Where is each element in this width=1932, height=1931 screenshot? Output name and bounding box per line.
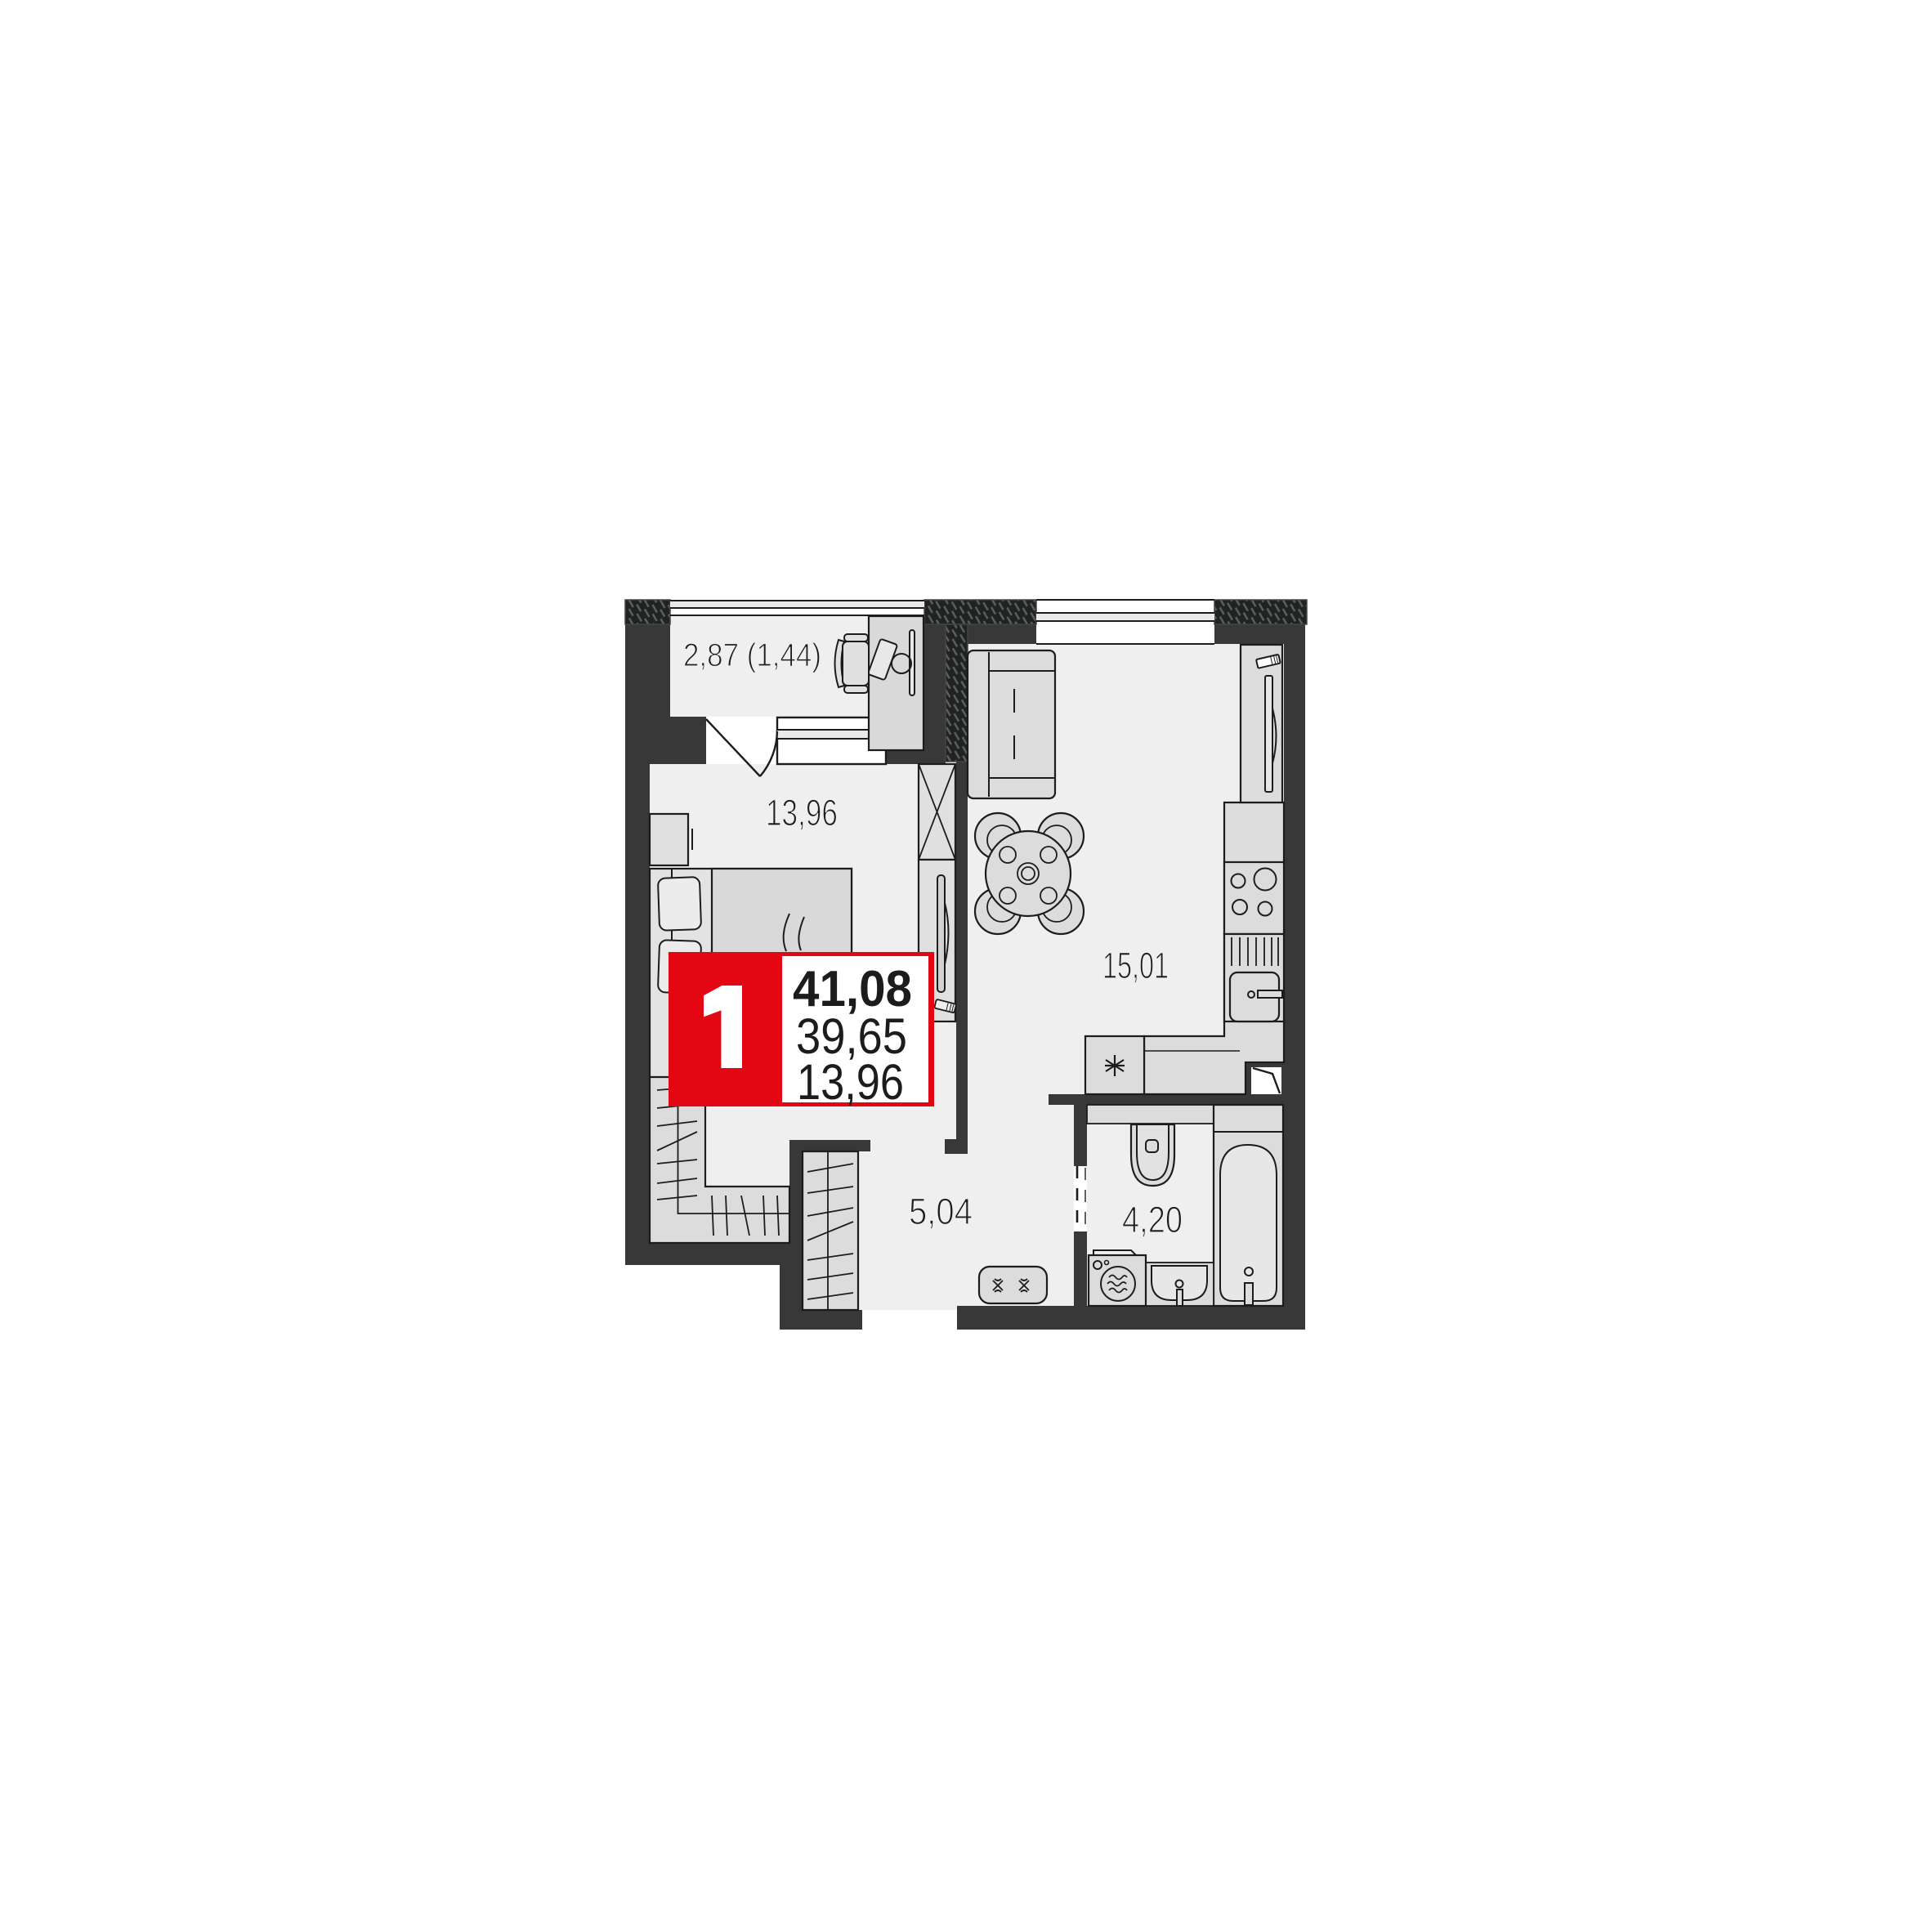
svg-text:13,96: 13,96 — [797, 1054, 904, 1110]
svg-text:15,01: 15,01 — [1102, 945, 1169, 986]
svg-text:5,04: 5,04 — [909, 1191, 973, 1232]
svg-text:4,20: 4,20 — [1122, 1199, 1183, 1240]
svg-text:2,87 (1,44): 2,87 (1,44) — [683, 637, 821, 673]
svg-text:13,96: 13,96 — [766, 792, 838, 834]
